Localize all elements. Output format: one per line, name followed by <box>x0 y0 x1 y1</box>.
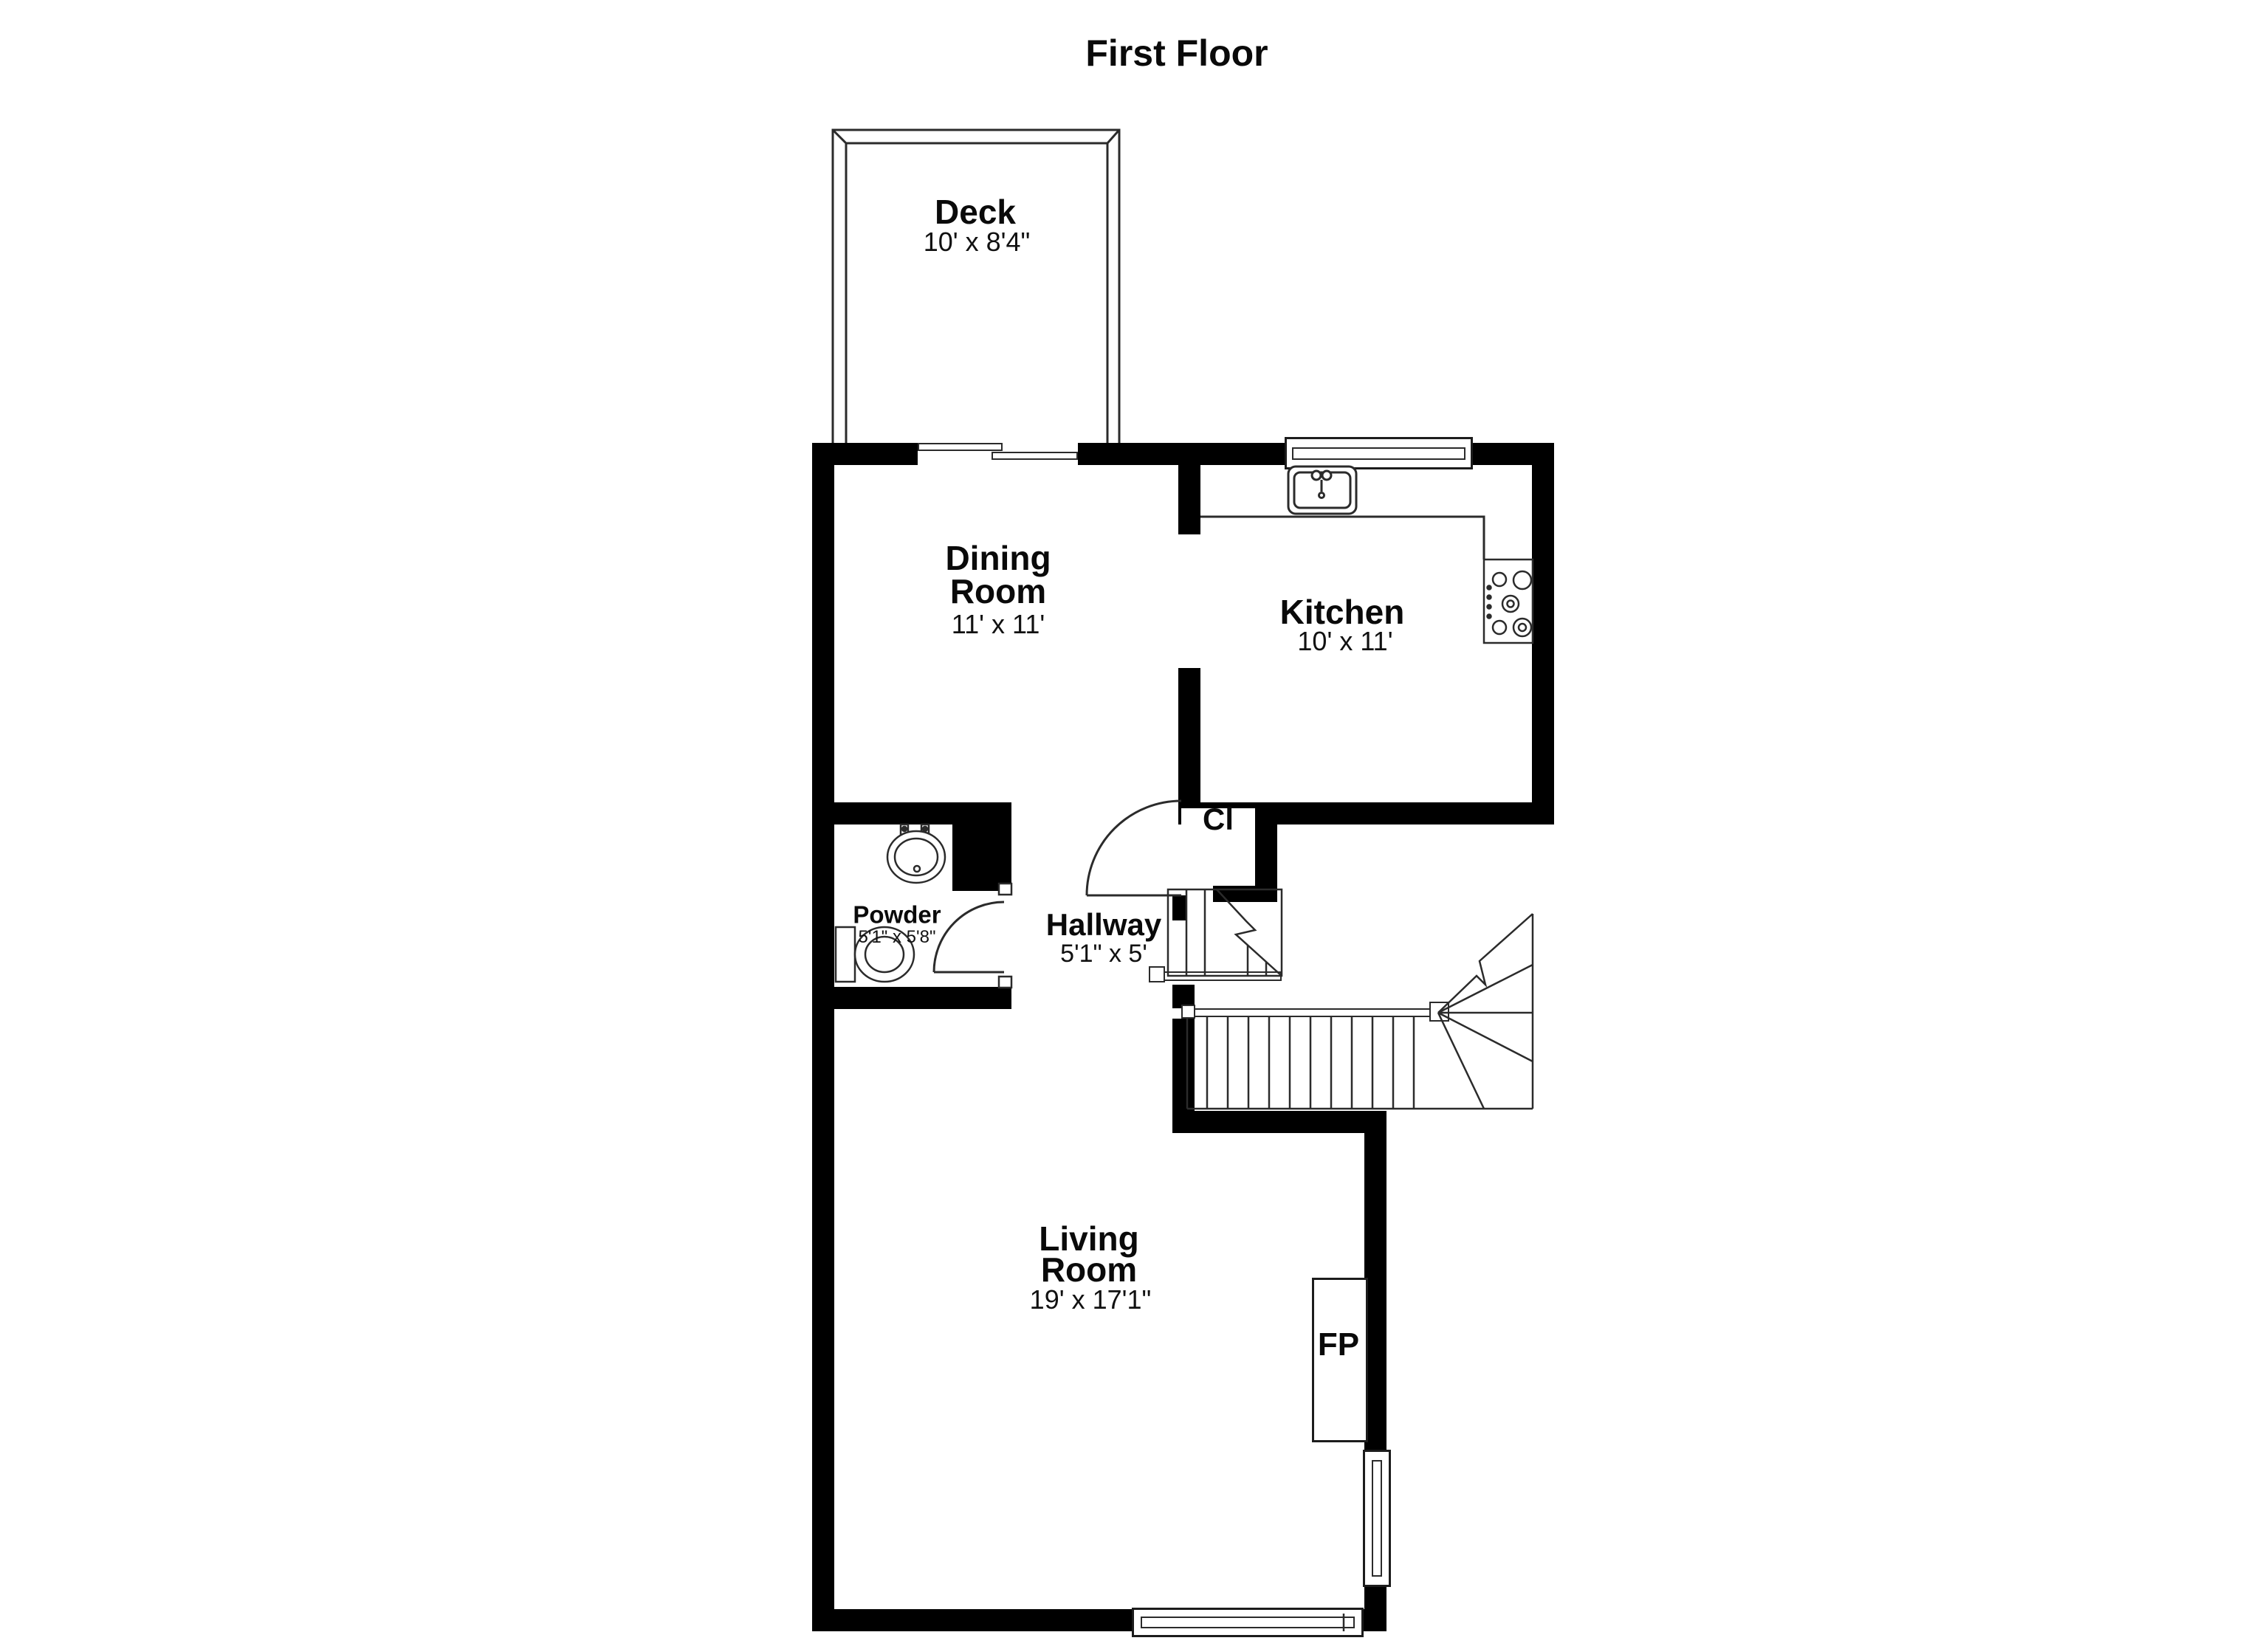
deck-railing-icon <box>833 130 1119 443</box>
linework-layer <box>0 0 2268 1649</box>
room-dims-kitchen: 10' x 11' <box>1297 628 1392 655</box>
room-label-deck: Deck <box>935 195 1016 229</box>
room-label-living-2: Room <box>1041 1253 1137 1287</box>
kitchen-counter <box>1200 517 1484 560</box>
bathroom-sink-icon <box>887 824 945 883</box>
room-label-dining-2: Room <box>950 574 1046 608</box>
room-dims-living: 19' x 17'1" <box>1030 1287 1152 1313</box>
room-dims-deck: 10' x 8'4" <box>924 229 1031 255</box>
room-dims-dining: 11' x 11' <box>952 611 1045 638</box>
room-label-powder: Powder <box>853 903 941 927</box>
room-dims-powder: 5'1" x 5'8" <box>859 929 936 946</box>
door-swing-icon <box>1087 801 1181 895</box>
room-label-dining: Dining <box>945 541 1051 575</box>
staircase-winder-icon <box>1168 889 1533 1109</box>
room-label-kitchen: Kitchen <box>1280 595 1405 629</box>
room-label-hallway: Hallway <box>1046 909 1161 940</box>
stove-cooktop-icon <box>1484 560 1533 643</box>
fireplace-label: FP <box>1318 1329 1359 1361</box>
page-title: First Floor <box>1085 35 1268 72</box>
door-swing-icon <box>934 884 1011 988</box>
room-label-closet: Cl <box>1203 804 1234 835</box>
kitchen-sink-icon <box>1288 467 1356 514</box>
room-dims-hallway: 5'1" x 5' <box>1060 941 1147 966</box>
floor-plan: First Floor Deck 10' x 8'4" Dining Room … <box>0 0 2268 1649</box>
